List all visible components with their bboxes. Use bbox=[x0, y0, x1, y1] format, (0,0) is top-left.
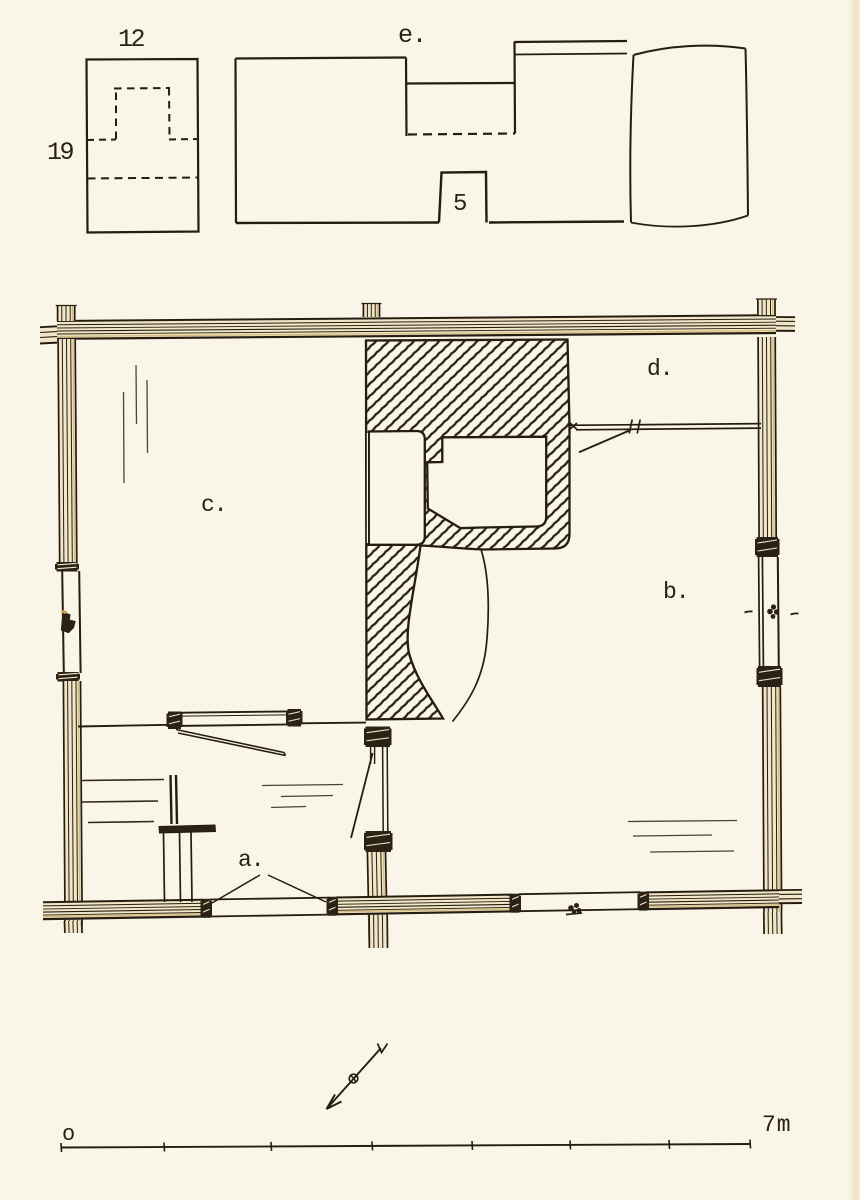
svg-text:a.: a. bbox=[238, 847, 264, 873]
svg-text:o: o bbox=[62, 1122, 75, 1147]
svg-text:b.: b. bbox=[663, 579, 689, 605]
svg-text:19: 19 bbox=[47, 138, 74, 167]
svg-text:d.: d. bbox=[647, 356, 673, 382]
svg-text:12: 12 bbox=[118, 25, 145, 54]
svg-text:c.: c. bbox=[201, 492, 227, 518]
svg-text:5: 5 bbox=[453, 191, 467, 218]
svg-text:e.: e. bbox=[398, 21, 426, 50]
svg-text:7m: 7m bbox=[762, 1112, 792, 1138]
